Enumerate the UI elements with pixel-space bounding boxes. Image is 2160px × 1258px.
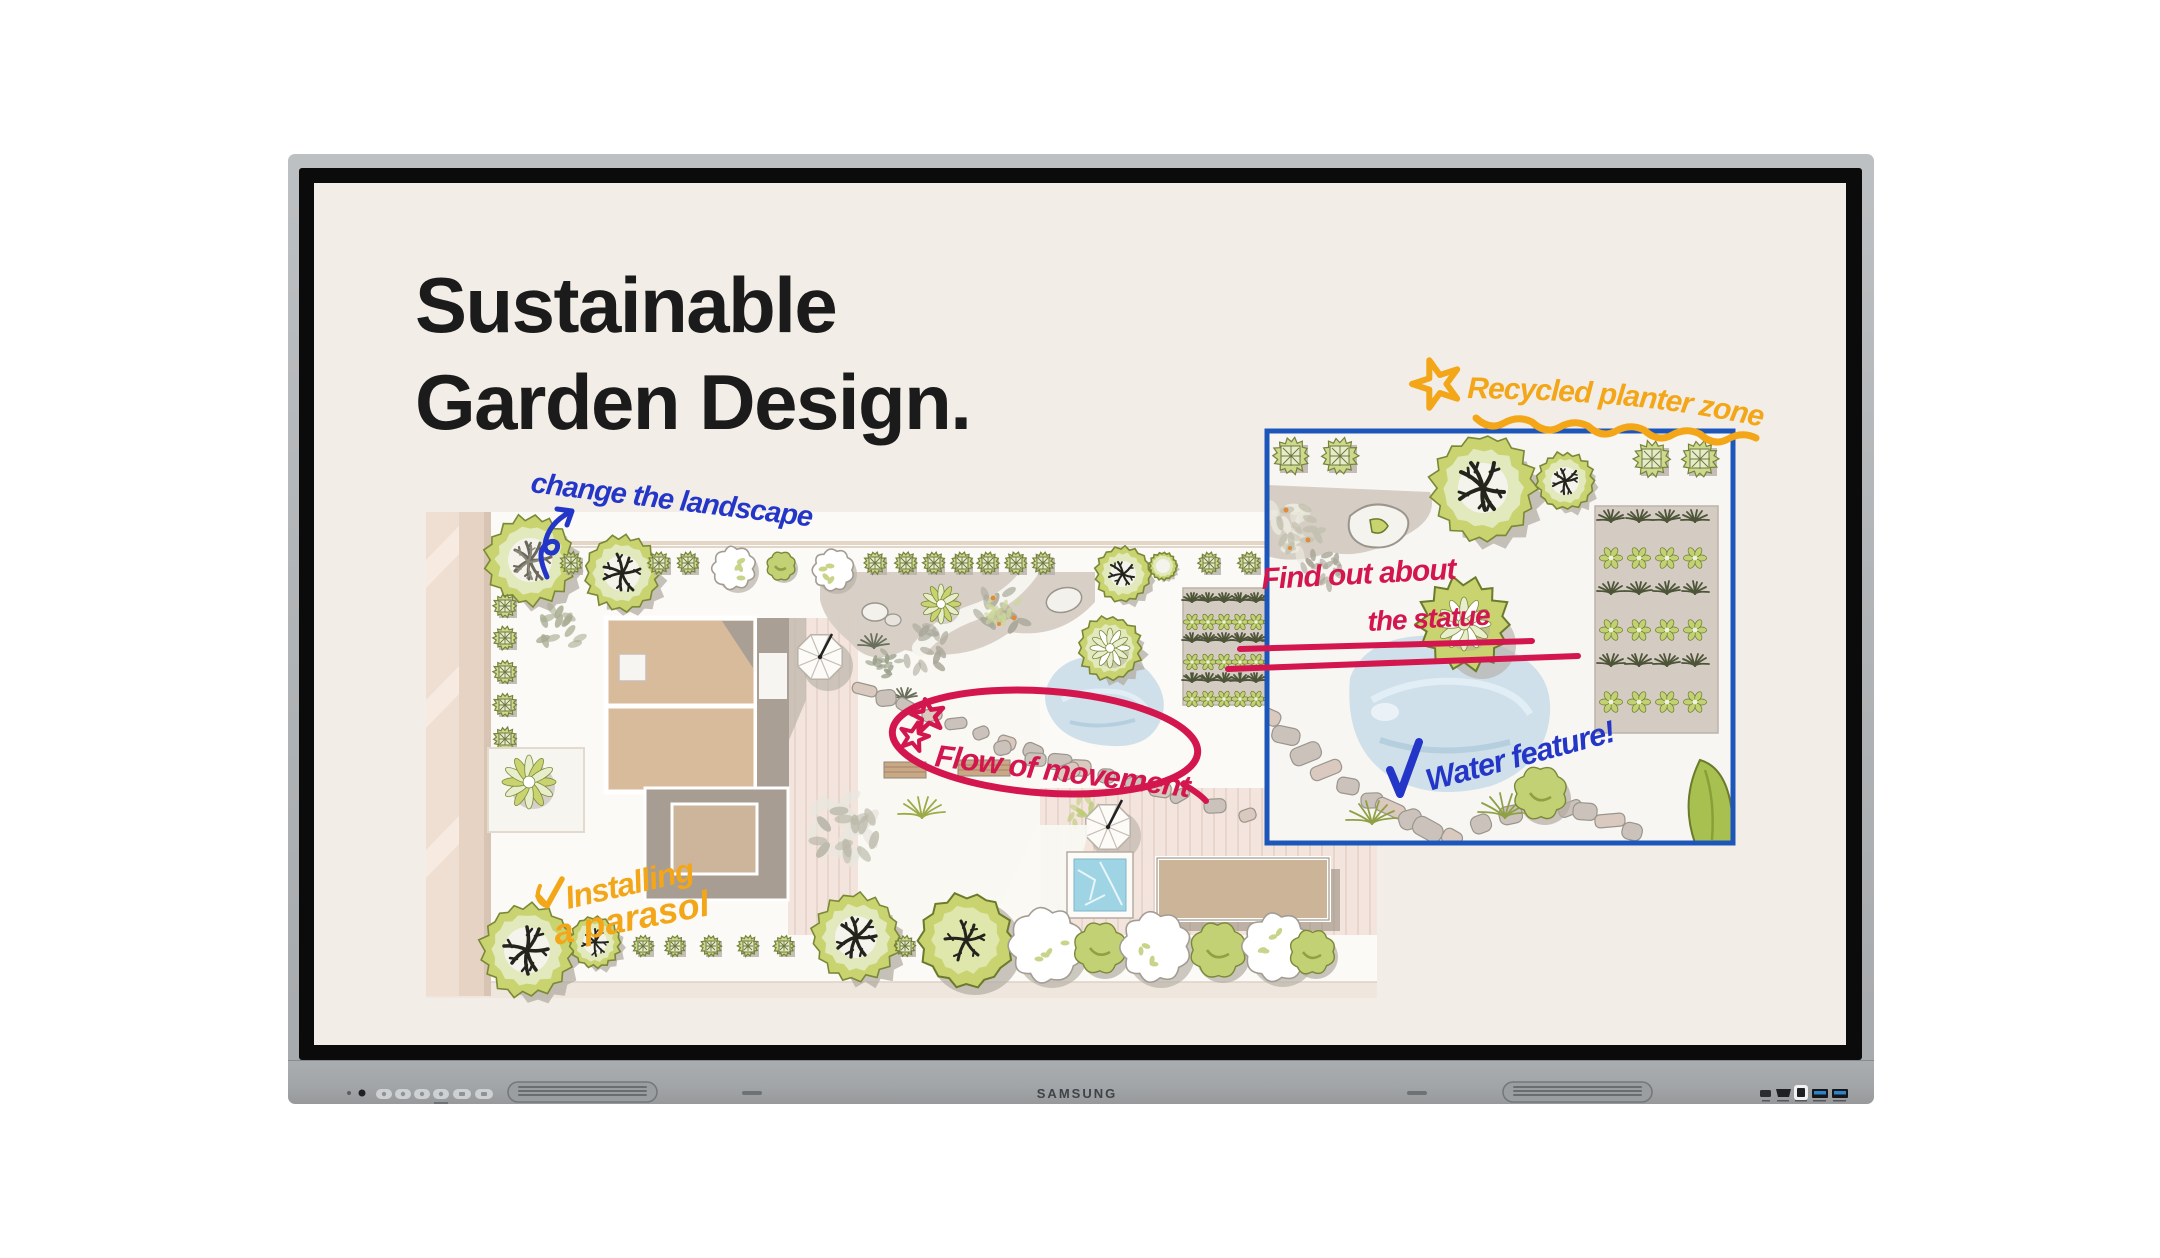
svg-text:Recycled planter zone: Recycled planter zone: [1467, 372, 1766, 433]
svg-text:SAMSUNG: SAMSUNG: [1037, 1086, 1117, 1101]
svg-text:the statue: the statue: [1367, 600, 1491, 637]
